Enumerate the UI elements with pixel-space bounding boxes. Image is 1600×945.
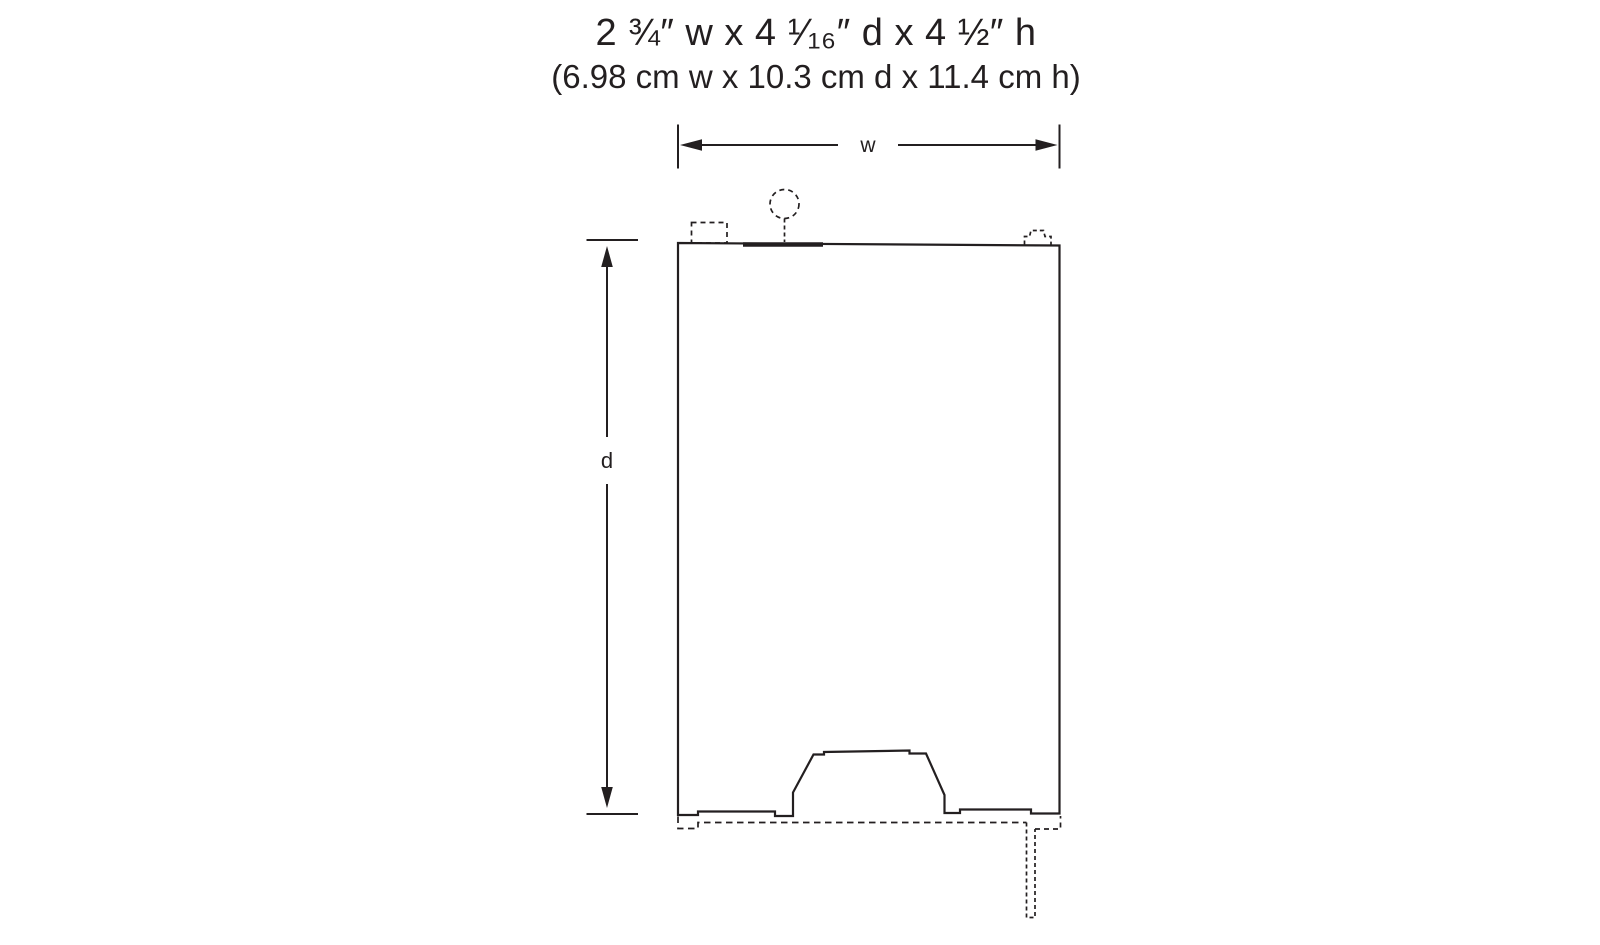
footprint-diagram: w d <box>0 0 1600 945</box>
width-dimension-indicator: w <box>678 125 1060 169</box>
hidden-downspout <box>1027 823 1036 918</box>
depth-dimension-indicator: d <box>587 240 639 814</box>
footprint-outline <box>678 243 1060 816</box>
hidden-base-outline <box>678 817 1027 829</box>
hidden-details-bottom <box>678 816 1061 918</box>
hidden-chimney-circle <box>770 190 799 219</box>
width-dimension-label: w <box>859 134 876 157</box>
down-arrowhead-icon <box>601 787 613 808</box>
hidden-base-outline-right <box>1035 816 1061 829</box>
hidden-rooftop-cap <box>1025 231 1052 245</box>
hidden-details-top <box>692 190 1052 245</box>
building-footprint <box>678 243 1060 816</box>
diagram-canvas: 2 ¾″ w x 4 ¹⁄₁₆″ d x 4 ½″ h (6.98 cm w x… <box>0 0 1600 945</box>
left-arrowhead-icon <box>680 139 702 151</box>
depth-dimension-label: d <box>601 448 613 473</box>
up-arrowhead-icon <box>601 246 613 267</box>
right-arrowhead-icon <box>1036 139 1058 151</box>
hidden-vent-rect <box>692 223 728 244</box>
